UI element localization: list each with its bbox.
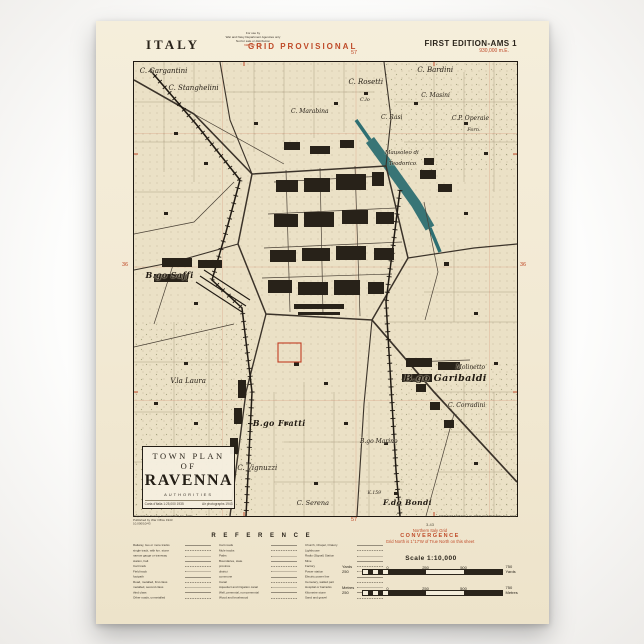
legend-symbol bbox=[185, 566, 211, 567]
grid-number-right: 36 bbox=[520, 262, 526, 268]
scale-bar-left-label: Metres 250 bbox=[342, 585, 359, 596]
legend-symbol bbox=[357, 545, 383, 546]
convergence-note: Northern Italy Grid CONVERGENCE Grid Nor… bbox=[340, 528, 520, 544]
map-label: C. Marabina bbox=[291, 108, 329, 115]
legend-symbol bbox=[271, 582, 297, 583]
grid-number-bottom: 57 bbox=[351, 517, 357, 523]
map-label: C.lo bbox=[360, 97, 370, 103]
scale-bar-tick: 0 bbox=[386, 586, 388, 591]
scale-bar-tick: 500 bbox=[460, 586, 467, 591]
legend-symbol bbox=[185, 582, 211, 583]
legend-symbol bbox=[185, 545, 211, 546]
legend-symbol bbox=[185, 551, 211, 552]
legend-symbol bbox=[271, 551, 297, 552]
scale-bar-right-label: 750 Metres bbox=[506, 585, 523, 596]
map-label: C. Vignuzzi bbox=[237, 464, 277, 472]
scale-bar-yards: Yards 2500250500750 Yards bbox=[342, 564, 522, 575]
map-label: C. Corradini bbox=[448, 402, 485, 409]
scale-bar-graphic: 0250500 bbox=[362, 569, 503, 575]
legend-label: Sand and gravel bbox=[305, 596, 327, 601]
legend-symbol bbox=[271, 572, 297, 573]
legend-symbol bbox=[357, 598, 383, 599]
scale-bar-tick: 250 bbox=[422, 565, 429, 570]
scale-bar-graphic: 0250500 bbox=[362, 590, 503, 596]
legend-symbol bbox=[185, 572, 211, 573]
title-line-1: TOWN PLAN OF bbox=[145, 451, 233, 471]
map-title-block: TOWN PLAN OF RAVENNA AUTHORITIES Carta d… bbox=[142, 446, 236, 509]
legend-symbol bbox=[271, 593, 297, 594]
map-label: C. Serena bbox=[297, 499, 329, 507]
legend-symbol bbox=[357, 551, 383, 552]
legend-symbol bbox=[357, 582, 383, 583]
map-label: C. Gargantini bbox=[140, 67, 188, 75]
country-title: ITALY bbox=[146, 37, 200, 53]
legend: Railway, two or more tracks single track… bbox=[133, 543, 393, 613]
legend-symbol bbox=[271, 587, 297, 588]
map-label: B.go Saffi bbox=[145, 270, 193, 280]
map-label: C.P. Operaie bbox=[452, 115, 489, 122]
publisher-line: 10,000/10/43 bbox=[133, 523, 243, 527]
legend-column-2: Cart roadsMule tracksPathsBoundaries, st… bbox=[219, 543, 297, 601]
legend-symbol bbox=[185, 598, 211, 599]
scale-bar-tick: 500 bbox=[460, 565, 467, 570]
scale-bar-tick: 0 bbox=[386, 565, 388, 570]
reference-title: R E F E R E N C E bbox=[202, 533, 322, 539]
map-title: RAVENNA bbox=[145, 472, 233, 490]
map-label: C. Rosetti bbox=[348, 78, 383, 86]
map-label: C. Stanghelini bbox=[168, 84, 218, 92]
edition-grid-number: 930,000 m.E. bbox=[479, 48, 509, 54]
legend-symbol bbox=[271, 545, 297, 546]
scale-bar-right-label: 750 Yards bbox=[506, 564, 522, 575]
publisher-credit: ARMY MAP SERVICE, U.S. ARMY, WASHINGTON,… bbox=[402, 515, 516, 518]
grid-number-left: 36 bbox=[122, 262, 128, 268]
title-credits: Carta d'Italia 1:25,000 1935 Air photogr… bbox=[145, 500, 233, 506]
publisher-note: Preparation: Survey, General Staff, No. … bbox=[133, 515, 243, 526]
legend-row: Other roads, unmetalled bbox=[133, 596, 211, 601]
title-authorities: AUTHORITIES bbox=[145, 492, 233, 497]
map-frame: C. GargantiniC. StangheliniC. MarabinaC.… bbox=[133, 61, 518, 517]
map-label: C. Masini bbox=[421, 92, 450, 99]
scale-bar-tick: 250 bbox=[422, 586, 429, 591]
legend-label: Wood and brushwood bbox=[219, 596, 248, 601]
legend-symbol bbox=[357, 577, 383, 578]
print-code: 3-43 bbox=[426, 522, 434, 527]
map-label: Forn. bbox=[467, 127, 480, 133]
legend-label: Other roads, unmetalled bbox=[133, 596, 165, 601]
map-label: B.go Fratti bbox=[253, 418, 306, 428]
legend-symbol bbox=[271, 598, 297, 599]
legend-row: Sand and gravel bbox=[305, 596, 383, 601]
scale-bar-left-label: Yards 250 bbox=[342, 564, 359, 575]
legend-symbol bbox=[185, 556, 211, 557]
grid-number-top: 57 bbox=[351, 50, 357, 56]
convergence-line-3: Grid North is 1°17'W of True North on th… bbox=[340, 539, 520, 544]
legend-column-1: Railway, two or more tracks single track… bbox=[133, 543, 211, 601]
map-label: C. Rasi bbox=[381, 114, 402, 121]
series-title: GRID PROVISIONAL bbox=[248, 42, 357, 51]
map-label: V.la Laura bbox=[170, 377, 206, 385]
map-label: F.do Bondi bbox=[383, 498, 432, 507]
title-credit-right: Air photographs 1943 bbox=[202, 502, 232, 506]
legend-symbol bbox=[271, 566, 297, 567]
legend-symbol bbox=[185, 577, 211, 578]
product-backdrop: ITALY For use byWar and Navy Department … bbox=[0, 0, 644, 644]
legend-symbol bbox=[185, 587, 211, 588]
legend-symbol bbox=[185, 593, 211, 594]
map-poster: ITALY For use byWar and Navy Department … bbox=[96, 21, 549, 624]
legend-symbol bbox=[271, 577, 297, 578]
scale-title: Scale 1:10,000 bbox=[366, 555, 496, 562]
map-label: Teodorico bbox=[389, 161, 416, 167]
map-label: K.159 bbox=[368, 491, 381, 496]
title-credit-left: Carta d'Italia 1:25,000 1935 bbox=[145, 502, 184, 506]
legend-symbol bbox=[185, 561, 211, 562]
map-label: C. Bardini bbox=[417, 66, 453, 74]
map-label: Mausoleo di bbox=[385, 150, 419, 156]
legend-symbol bbox=[271, 556, 297, 557]
legend-symbol bbox=[271, 561, 297, 562]
scale-bar-metres: Metres 2500250500750 Metres bbox=[342, 585, 522, 596]
map-label: B.go Marino bbox=[360, 438, 398, 445]
map-label: Molinetto bbox=[456, 364, 485, 371]
map-label: B.go Garibaldi bbox=[404, 373, 487, 384]
legend-row: Wood and brushwood bbox=[219, 596, 297, 601]
edition-title: FIRST EDITION-AMS 1 bbox=[425, 39, 518, 48]
